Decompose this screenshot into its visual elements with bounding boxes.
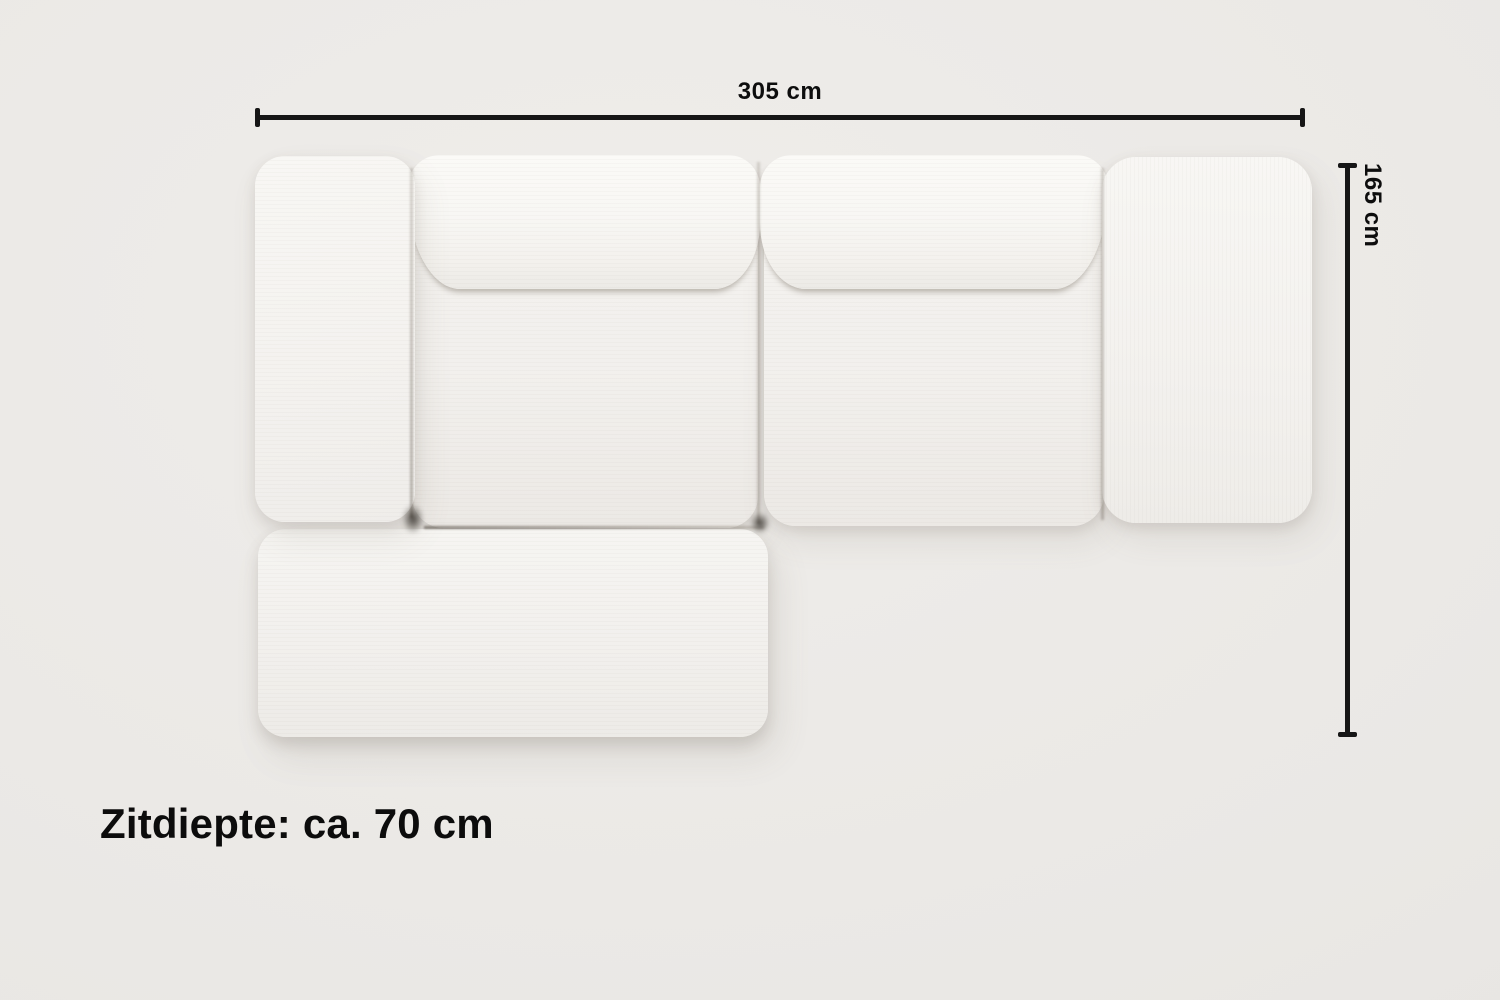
right-armrest	[1102, 157, 1312, 523]
backrest-cushion-right	[760, 155, 1108, 289]
depth-dimension-line	[1345, 163, 1350, 737]
chaise-ottoman	[258, 529, 768, 737]
depth-dimension-label: 165 cm	[1358, 163, 1386, 737]
backrest-cushion-left	[408, 155, 760, 289]
width-dimension-label: 305 cm	[255, 78, 1305, 106]
seat-depth-note: Zitdiepte: ca. 70 cm	[100, 800, 494, 848]
width-dimension-line	[255, 115, 1305, 120]
crease-shadow	[750, 512, 770, 534]
product-dimension-diagram: 305 cm 165 cm Zitdiepte: ca. 70 cm	[0, 0, 1500, 1000]
depth-dimension: 165 cm	[1338, 163, 1398, 737]
left-armrest	[255, 156, 415, 522]
width-dimension: 305 cm	[255, 78, 1305, 138]
